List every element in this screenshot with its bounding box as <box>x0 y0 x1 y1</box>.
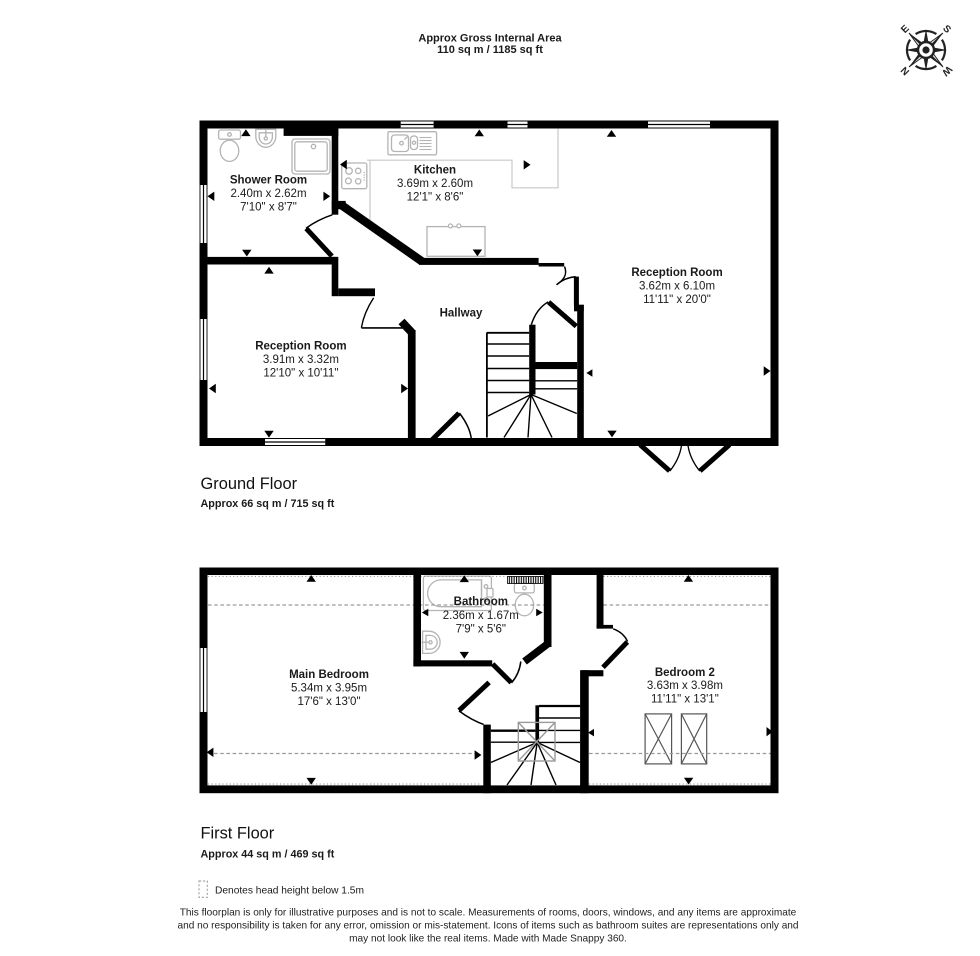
svg-text:and no responsibility is taken: and no responsibility is taken for any e… <box>177 920 798 931</box>
svg-text:Approx 66 sq m / 715 sq ft: Approx 66 sq m / 715 sq ft <box>201 498 335 510</box>
svg-text:Bathroom: Bathroom <box>454 596 508 608</box>
svg-text:3.91m x 3.32m: 3.91m x 3.32m <box>263 354 339 366</box>
svg-text:Hallway: Hallway <box>440 308 483 320</box>
svg-text:3.69m x 2.60m: 3.69m x 2.60m <box>397 178 473 190</box>
svg-text:may not look like the real ite: may not look like the real items. Made w… <box>349 933 627 944</box>
svg-text:7'10" x 8'7": 7'10" x 8'7" <box>240 202 297 214</box>
svg-text:3.62m x 6.10m: 3.62m x 6.10m <box>639 281 715 293</box>
svg-text:Reception Room: Reception Room <box>255 341 346 353</box>
svg-text:17'6" x 13'0": 17'6" x 13'0" <box>297 696 360 708</box>
svg-text:Approx 44 sq m / 469 sq ft: Approx 44 sq m / 469 sq ft <box>201 849 335 861</box>
svg-text:7'9" x 5'6": 7'9" x 5'6" <box>456 623 506 635</box>
svg-text:110 sq m / 1185 sq ft: 110 sq m / 1185 sq ft <box>437 44 543 56</box>
svg-text:Main Bedroom: Main Bedroom <box>289 669 369 681</box>
svg-text:First Floor: First Floor <box>201 825 275 843</box>
svg-text:Kitchen: Kitchen <box>414 164 456 176</box>
svg-text:Ground Floor: Ground Floor <box>201 475 298 493</box>
svg-text:3.63m x 3.98m: 3.63m x 3.98m <box>647 680 723 692</box>
svg-text:11'11" x 20'0": 11'11" x 20'0" <box>643 294 711 306</box>
svg-text:5.34m x 3.95m: 5.34m x 3.95m <box>291 683 367 695</box>
svg-text:Denotes head height below 1.5m: Denotes head height below 1.5m <box>215 885 364 896</box>
svg-text:2.36m x 1.67m: 2.36m x 1.67m <box>443 610 519 622</box>
svg-text:11'11" x 13'1": 11'11" x 13'1" <box>651 694 719 706</box>
svg-text:Shower Room: Shower Room <box>230 175 307 187</box>
svg-text:Reception Room: Reception Room <box>631 267 722 279</box>
svg-text:Approx Gross Internal Area: Approx Gross Internal Area <box>418 33 562 45</box>
svg-text:Bedroom 2: Bedroom 2 <box>655 667 715 679</box>
svg-text:12'10" x 10'11": 12'10" x 10'11" <box>263 368 338 380</box>
svg-text:This floorplan is only for ill: This floorplan is only for illustrative … <box>180 907 797 918</box>
svg-text:12'1" x 8'6": 12'1" x 8'6" <box>407 191 464 203</box>
svg-text:2.40m x 2.62m: 2.40m x 2.62m <box>230 188 306 200</box>
